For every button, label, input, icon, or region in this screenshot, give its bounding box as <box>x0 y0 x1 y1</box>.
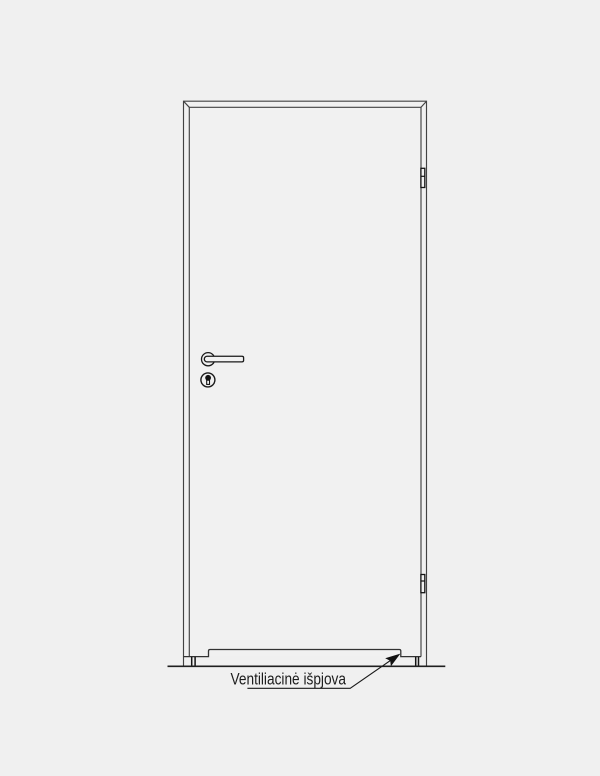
svg-text:Ventiliacinė išpjova: Ventiliacinė išpjova <box>231 669 347 688</box>
